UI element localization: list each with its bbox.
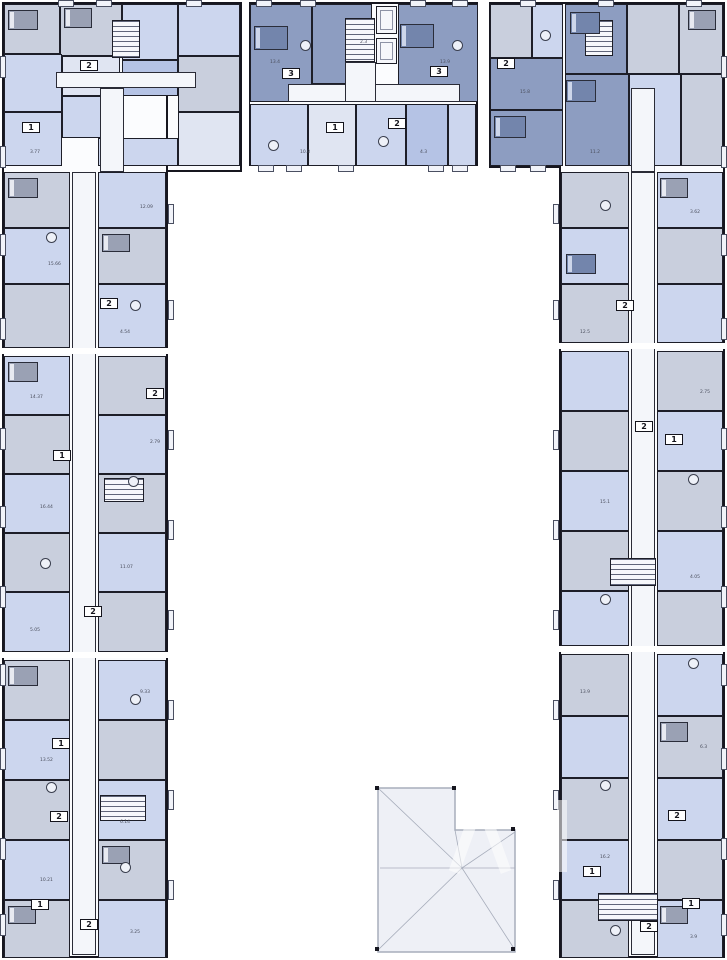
watermark <box>448 792 578 882</box>
roof-plan <box>0 0 727 960</box>
roof-corner-tick <box>511 947 515 951</box>
roof-corner-tick <box>375 786 379 790</box>
floor-plan-canvas: 23312212122121221221123.7712.0915.664.54… <box>0 0 727 960</box>
roof-corner-tick <box>375 947 379 951</box>
roof-corner-tick <box>452 786 456 790</box>
